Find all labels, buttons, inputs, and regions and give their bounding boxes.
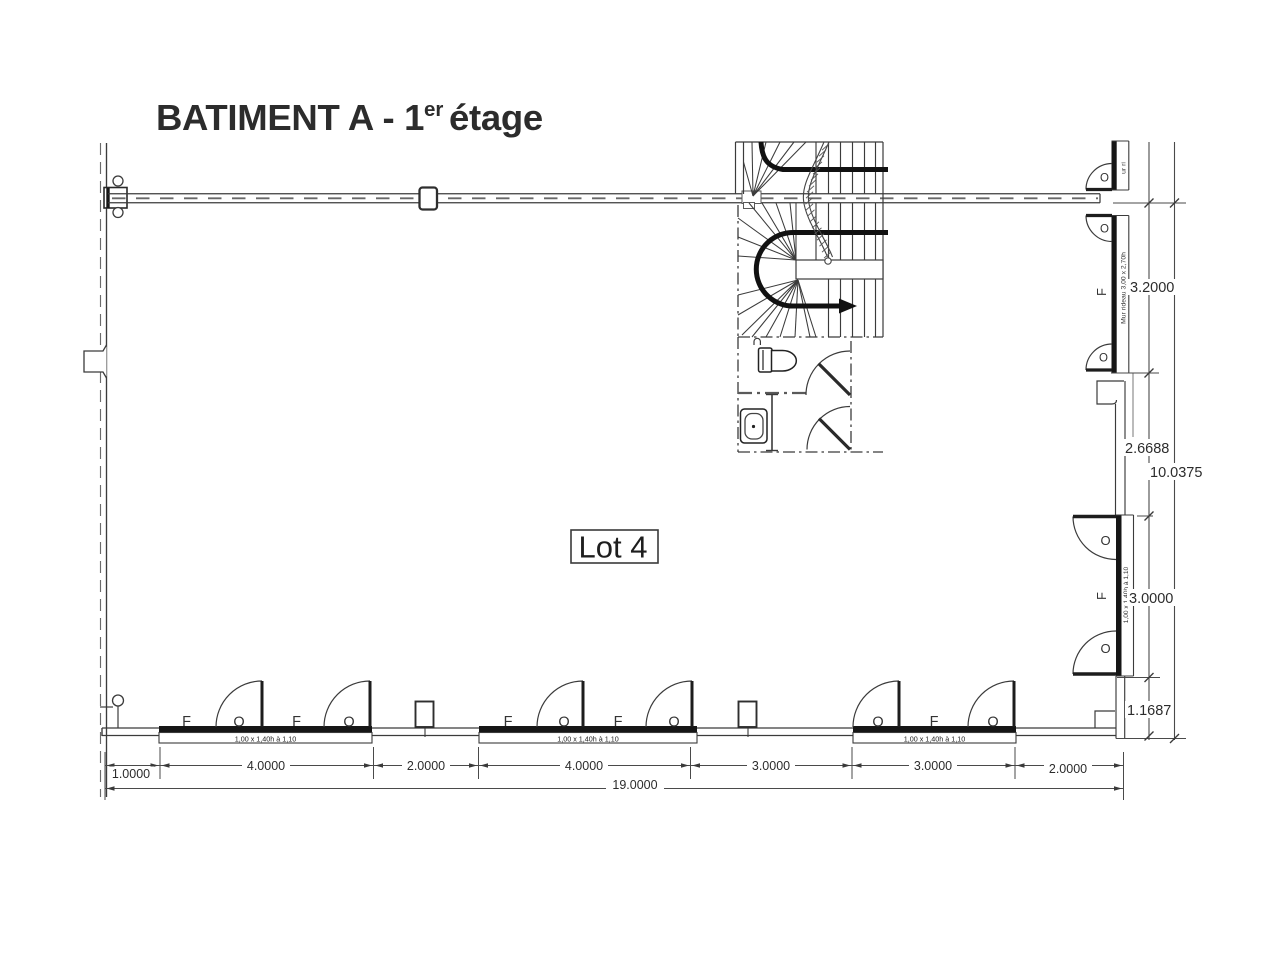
svg-text:4.0000: 4.0000: [565, 759, 603, 773]
svg-text:O: O: [1100, 224, 1109, 236]
svg-text:2.6688: 2.6688: [1125, 441, 1169, 457]
svg-text:Mur rideau 3,00 x 2,70h: Mur rideau 3,00 x 2,70h: [1121, 252, 1128, 324]
svg-text:O: O: [1100, 533, 1110, 548]
svg-text:ur ri: ur ri: [1121, 162, 1128, 174]
svg-text:F: F: [182, 714, 191, 730]
svg-text:O: O: [987, 715, 998, 731]
svg-text:19.0000: 19.0000: [612, 778, 657, 792]
svg-text:F: F: [1094, 288, 1109, 296]
svg-text:O: O: [872, 715, 883, 731]
svg-text:2.0000: 2.0000: [407, 759, 445, 773]
svg-text:1.0000: 1.0000: [112, 767, 150, 781]
svg-text:O: O: [668, 715, 679, 731]
svg-text:F: F: [614, 714, 623, 730]
svg-text:1,00 x 1,40h à 1,10: 1,00 x 1,40h à 1,10: [235, 735, 297, 744]
svg-text:3.0000: 3.0000: [752, 759, 790, 773]
svg-text:er: er: [424, 98, 443, 121]
svg-text:O: O: [233, 715, 244, 731]
svg-text:F: F: [930, 714, 939, 730]
svg-text:3.0000: 3.0000: [914, 759, 952, 773]
svg-text:O: O: [1099, 353, 1108, 365]
svg-text:3.0000: 3.0000: [1129, 591, 1173, 607]
svg-text:Lot 4: Lot 4: [579, 530, 648, 565]
svg-text:O: O: [1100, 641, 1110, 656]
svg-text:étage: étage: [449, 97, 543, 138]
svg-text:O: O: [1100, 173, 1109, 185]
svg-text:F: F: [292, 714, 301, 730]
svg-text:O: O: [343, 715, 354, 731]
svg-text:2.0000: 2.0000: [1049, 762, 1087, 776]
svg-text:1,00 x 1,40h à 1,10: 1,00 x 1,40h à 1,10: [557, 735, 619, 744]
svg-text:BATIMENT A - 1: BATIMENT A - 1: [156, 97, 424, 138]
svg-text:1,00 x 1,40h à 1,10: 1,00 x 1,40h à 1,10: [904, 735, 966, 744]
svg-text:3.2000: 3.2000: [1130, 280, 1174, 296]
svg-text:10.0375: 10.0375: [1150, 465, 1202, 481]
svg-text:F: F: [1094, 592, 1109, 600]
svg-text:F: F: [504, 714, 513, 730]
svg-text:O: O: [558, 715, 569, 731]
svg-text:4.0000: 4.0000: [247, 759, 285, 773]
svg-text:1.1687: 1.1687: [1127, 703, 1171, 719]
